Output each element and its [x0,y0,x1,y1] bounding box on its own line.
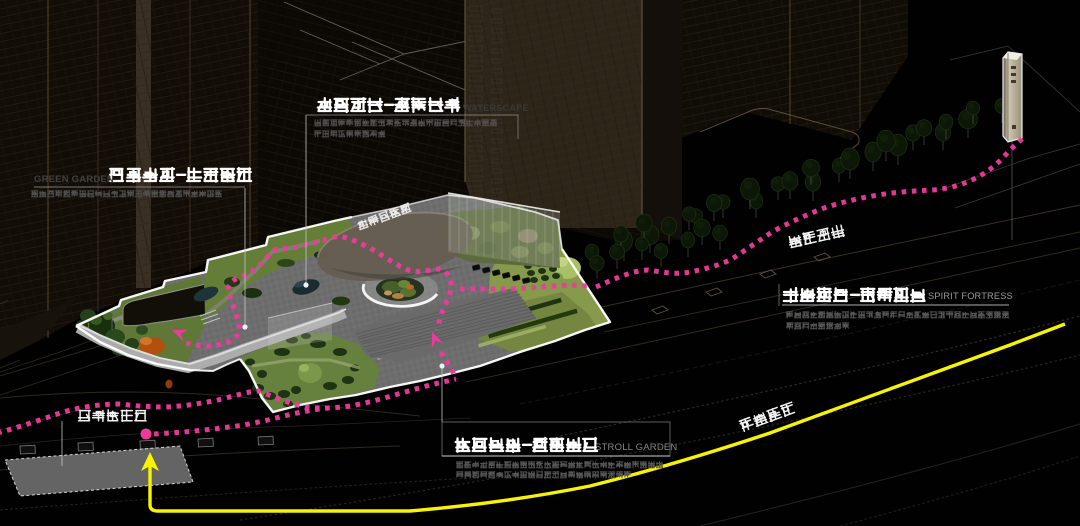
svg-text:SPIRIT FORTRESS: SPIRIT FORTRESS [928,291,1013,301]
svg-text:WATERSCAPE: WATERSCAPE [463,103,529,113]
svg-text:STROLL GARDEN: STROLL GARDEN [595,442,678,453]
svg-text:GREEN GARDEN: GREEN GARDEN [34,174,114,185]
